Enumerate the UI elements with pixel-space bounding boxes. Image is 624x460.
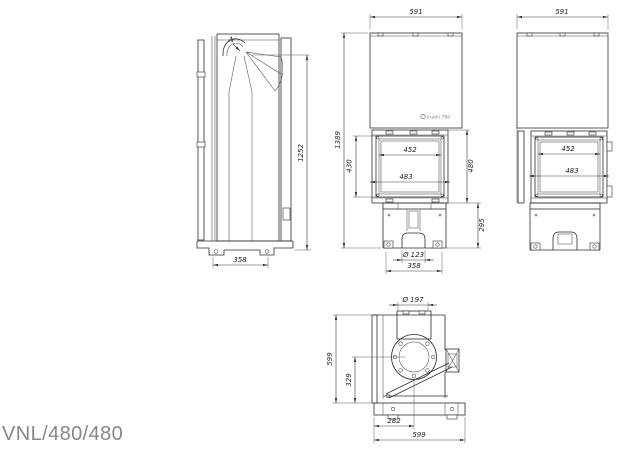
drawing-title: VNL/480/480 <box>2 423 123 446</box>
front-firebox <box>372 130 448 203</box>
right-side-view: 591 452 483 <box>517 8 612 250</box>
dim-top-flue-diameter: Ø 197 <box>401 296 424 304</box>
dim-group-right-width: 591 <box>517 8 608 29</box>
detail-label-a: A <box>227 36 233 44</box>
top-view: Ø 197 599 329 282 599 <box>326 296 465 443</box>
dim-top-flue-offset: 329 <box>345 373 353 387</box>
dim-front-inlet-diameter: Ø 123 <box>402 251 424 259</box>
dim-group-front-width: 591 <box>370 8 462 29</box>
dim-group-side-depth: 358 <box>213 256 268 268</box>
dim-front-total-height: 1389 <box>334 131 342 149</box>
dim-group-front-glass-width: 452 <box>379 146 441 155</box>
dim-front-glass-width: 452 <box>403 146 417 154</box>
dim-group-side-height: 1252 <box>252 55 311 250</box>
side-base <box>197 241 293 255</box>
brand-stamp: kratki 790 <box>421 114 451 119</box>
top-diagonal-door-bar <box>386 363 452 398</box>
dim-group-front-firebox-height: 480 <box>448 130 481 203</box>
dim-right-opening-width: 483 <box>565 167 578 175</box>
dim-front-base-width: 358 <box>407 262 421 270</box>
top-left-glass-edge <box>372 315 377 403</box>
dim-group-front-total-height: 1389 <box>334 33 381 248</box>
side-view: A 358 1252 <box>197 34 311 268</box>
dim-group-front-opening-width: 483 <box>370 173 450 182</box>
front-view: kratki 790 <box>334 8 486 274</box>
dim-front-opening-width: 483 <box>399 173 412 181</box>
dim-group-front-glass-height: 430 <box>346 136 377 197</box>
right-hood <box>517 33 608 128</box>
dim-front-glass-height: 430 <box>346 159 354 173</box>
dim-top-flue-from-left: 282 <box>387 417 401 425</box>
dim-side-height: 1252 <box>297 144 305 162</box>
dim-group-top-depth: 599 <box>326 315 374 403</box>
dim-group-front-base-height: 295 <box>446 203 486 248</box>
technical-drawing-sheet: A 358 1252 <box>0 0 624 460</box>
front-pedestal <box>383 203 446 248</box>
dim-group-right-glass-width: 452 <box>538 145 600 154</box>
dim-front-firebox-height: 480 <box>467 159 475 173</box>
dim-group-right-opening-width: 483 <box>529 167 609 176</box>
dim-front-width: 591 <box>409 8 422 16</box>
dim-side-depth: 358 <box>233 256 247 264</box>
dim-top-width: 599 <box>412 431 426 439</box>
dim-top-depth: 599 <box>326 352 334 366</box>
dim-front-base-height: 295 <box>478 218 486 232</box>
drawing-canvas: A 358 1252 <box>0 0 624 460</box>
front-hood: kratki 790 <box>370 33 462 128</box>
dim-group-top-flue-diameter: Ø 197 <box>389 296 437 310</box>
damper-swing-arc <box>246 52 283 91</box>
logo-stamp: kratki 790 <box>427 115 450 120</box>
right-pedestal <box>530 203 600 250</box>
right-side-glass-edge <box>518 131 524 203</box>
dim-right-width: 591 <box>555 8 568 16</box>
dim-right-glass-width: 452 <box>561 145 575 153</box>
top-latch-mechanism <box>446 349 459 372</box>
